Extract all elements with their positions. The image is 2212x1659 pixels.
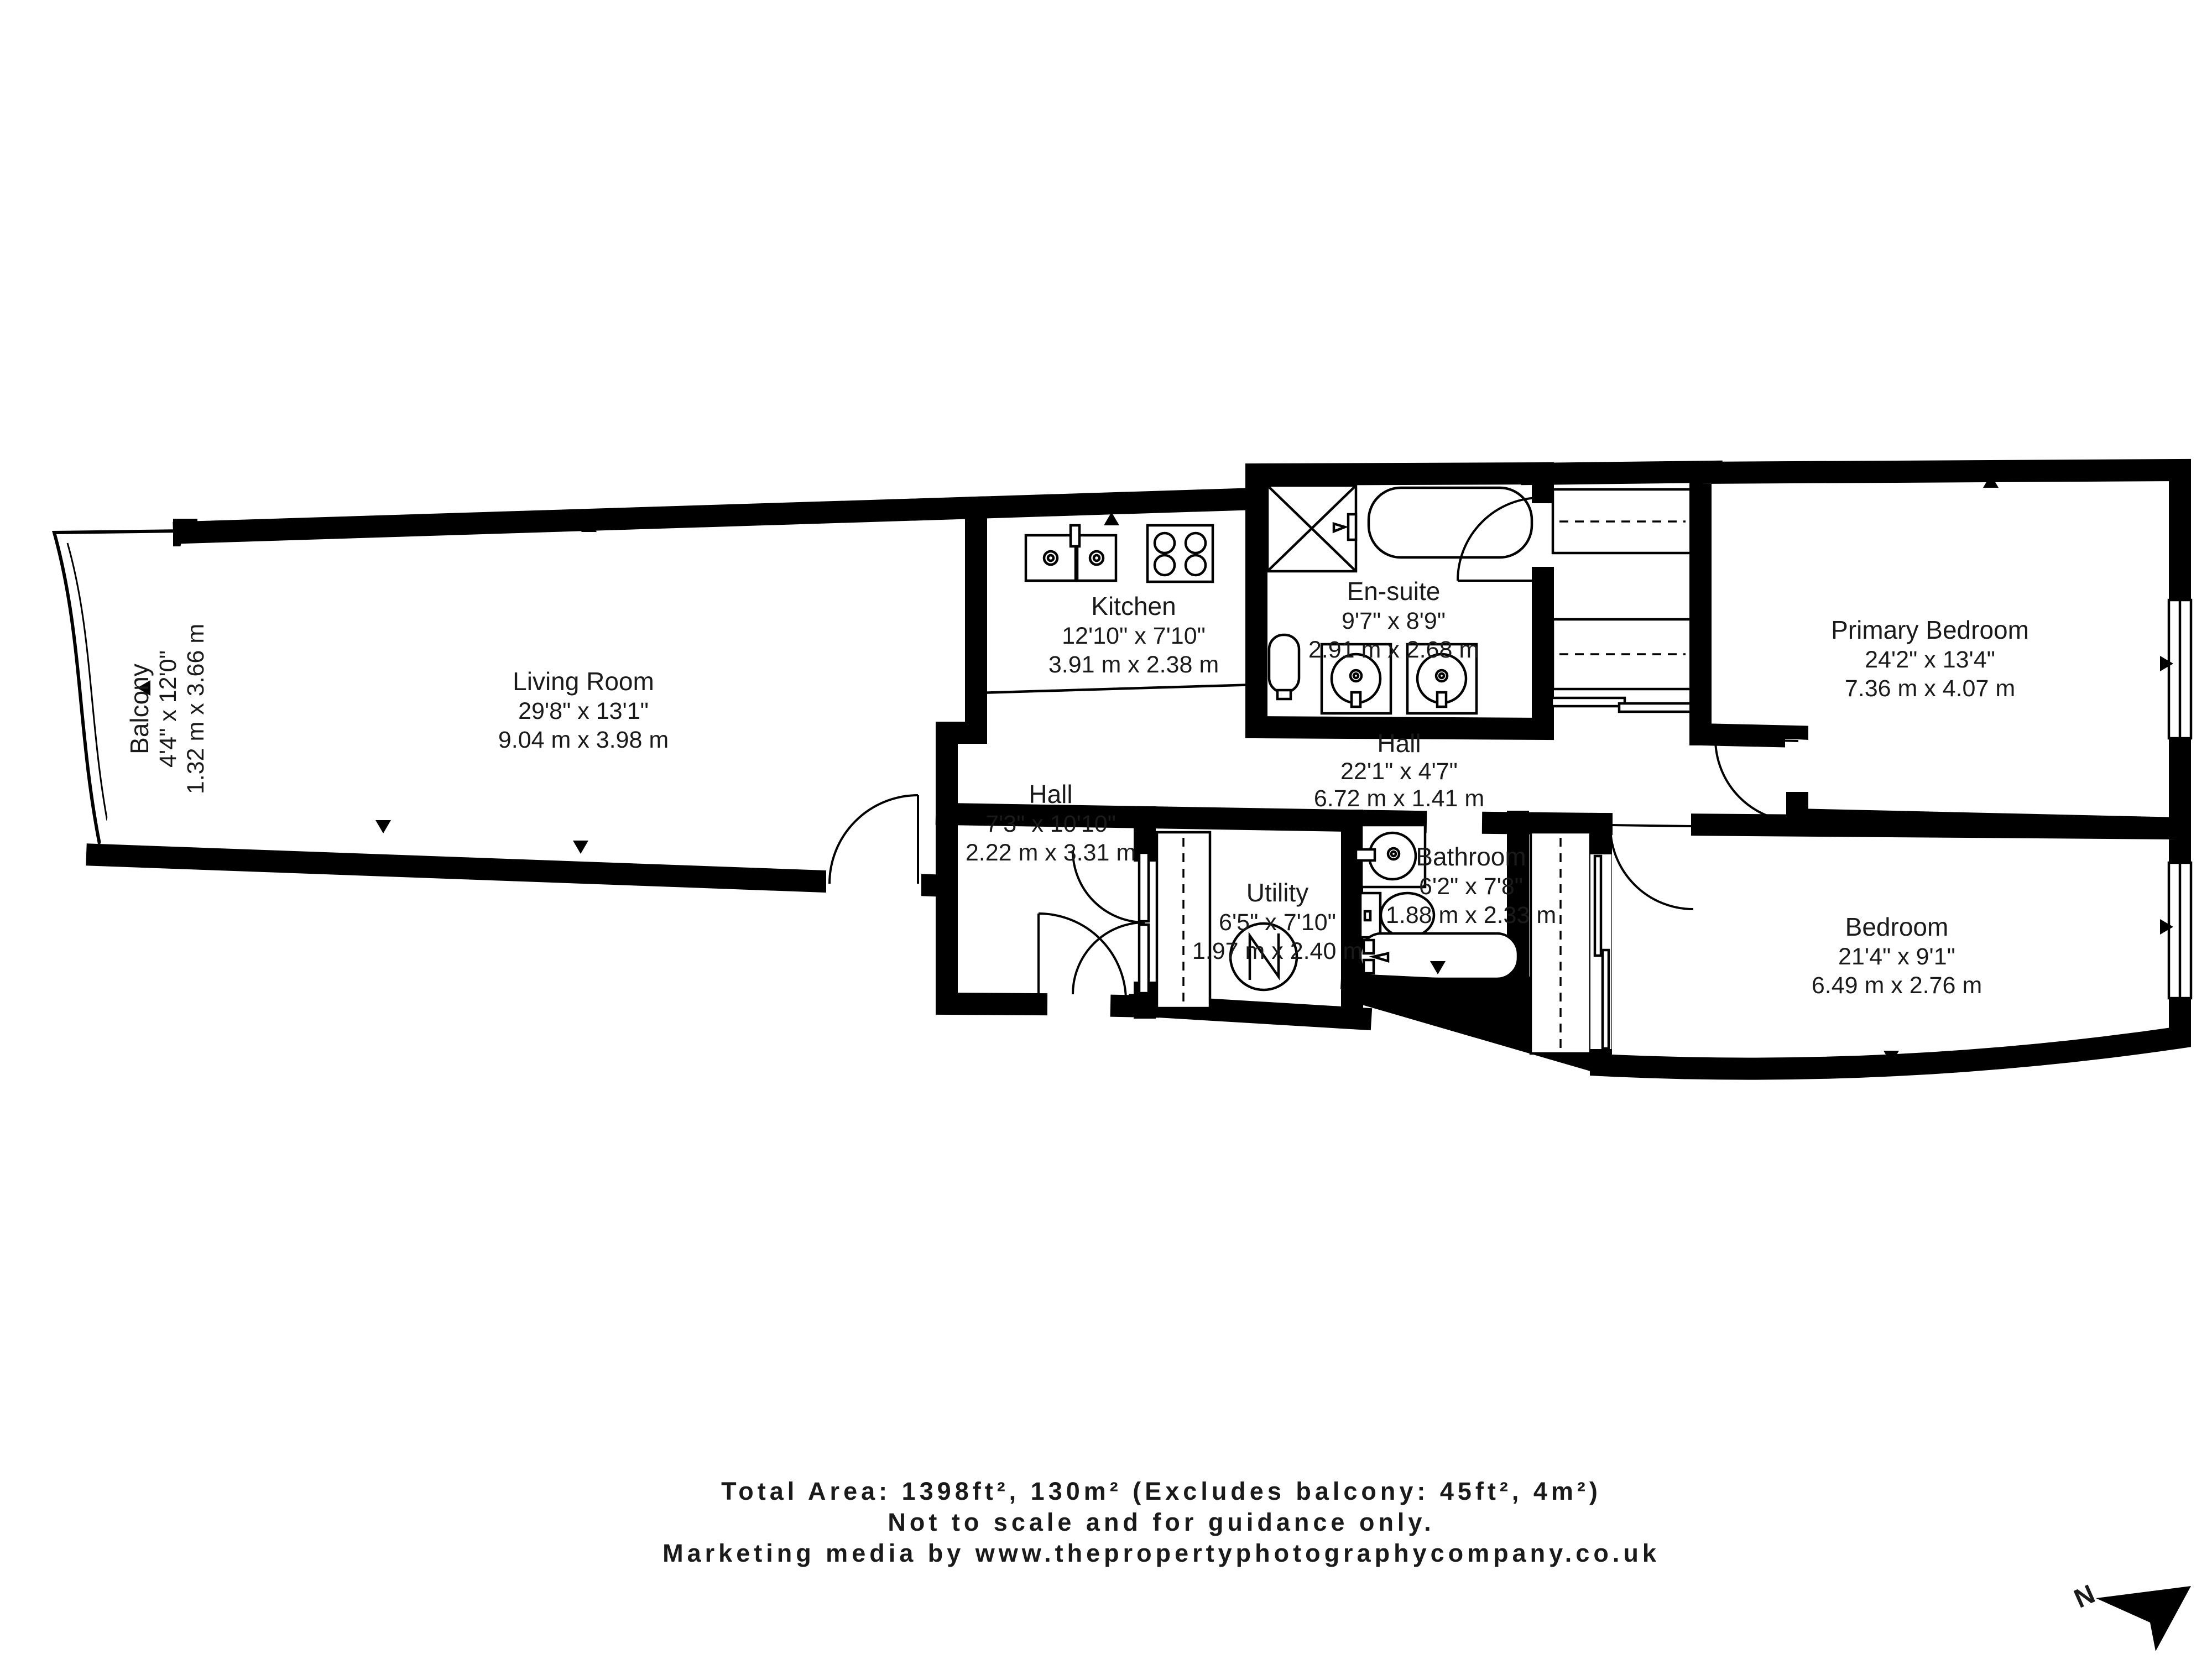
footer-disclaimer: Not to scale and for guidance only. (888, 1508, 1434, 1536)
wardrobe-icon (1531, 832, 1590, 1053)
wardrobe-icon (1553, 619, 1691, 689)
sliding-door-icon (1590, 854, 1611, 1049)
wardrobe-icon (1553, 489, 1691, 553)
footer-total-area: Total Area: 1398ft², 130m² (Excludes bal… (721, 1477, 1601, 1505)
living-room-walls (97, 508, 976, 886)
room-imperial: 21'4" x 9'1" (1838, 943, 1955, 970)
room-name: Living Room (513, 667, 654, 696)
bathroom-sink-icon (1356, 825, 1425, 887)
room-name: Kitchen (1091, 592, 1176, 620)
shower-icon (1267, 486, 1356, 571)
north-label: N (2070, 1579, 2099, 1614)
hob-icon (1147, 525, 1213, 582)
room-metric: 9.04 m x 3.98 m (498, 727, 669, 753)
room-name: En-suite (1347, 577, 1441, 606)
room-metric: 3.91 m x 2.38 m (1048, 651, 1219, 678)
ensuite-toilet-icon (1269, 635, 1299, 699)
window-icon (2166, 863, 2194, 998)
label-living-room: Living Room 29'8" x 13'1" 9.04 m x 3.98 … (498, 667, 669, 753)
bedroom-door-leaf (1610, 825, 1693, 826)
room-metric: 2.91 m x 2.68 m (1308, 637, 1479, 663)
room-metric: 2.22 m x 3.31 m (966, 839, 1136, 866)
room-metric: 6.49 m x 2.76 m (1812, 972, 1982, 999)
room-name: Balcony (125, 664, 154, 754)
living-door-opening (826, 867, 921, 900)
wardrobe-icon (1157, 832, 1210, 1008)
room-metric: 6.72 m x 1.41 m (1314, 785, 1484, 812)
room-metric: 1.88 m x 2.33 m (1386, 902, 1556, 928)
room-name: Primary Bedroom (1831, 615, 2029, 644)
footer-credit: Marketing media by www.thepropertyphotog… (662, 1539, 1660, 1567)
room-name: Bedroom (1845, 912, 1949, 941)
room-name: Hall (1377, 729, 1421, 758)
room-imperial: 22'1" x 4'7" (1340, 758, 1458, 785)
room-imperial: 6'5" x 7'10" (1219, 909, 1336, 936)
floorplan-page: Balcony 4'4" x 12'0" 1.32 m x 3.66 m Liv… (0, 0, 2212, 1659)
room-imperial: 4'4" x 12'0" (155, 650, 181, 768)
north-arrow: N (2070, 1579, 2191, 1651)
room-imperial: 24'2" x 13'4" (1865, 646, 1995, 673)
footer: Total Area: 1398ft², 130m² (Excludes bal… (662, 1477, 1660, 1567)
room-imperial: 12'10" x 7'10" (1062, 623, 1206, 649)
floorplan-drawing: Balcony 4'4" x 12'0" 1.32 m x 3.66 m Liv… (0, 0, 2212, 1659)
north-arrow-icon (2096, 1586, 2191, 1651)
room-metric: 7.36 m x 4.07 m (1845, 675, 2015, 702)
room-metric: 1.97 m x 2.40 m (1192, 938, 1363, 964)
room-imperial: 9'7" x 8'9" (1342, 608, 1446, 634)
window-icon (2166, 600, 2194, 738)
room-metric: 1.32 m x 3.66 m (182, 624, 209, 794)
room-name: Utility (1246, 878, 1308, 907)
room-name: Bathroom (1416, 842, 1526, 871)
room-imperial: 6'2" x 7'8" (1419, 873, 1523, 900)
room-imperial: 7'3" x 10'10" (985, 811, 1116, 837)
room-imperial: 29'8" x 13'1" (518, 698, 649, 724)
room-name: Hall (1029, 780, 1072, 808)
ensuite-bath-icon (1369, 488, 1532, 557)
